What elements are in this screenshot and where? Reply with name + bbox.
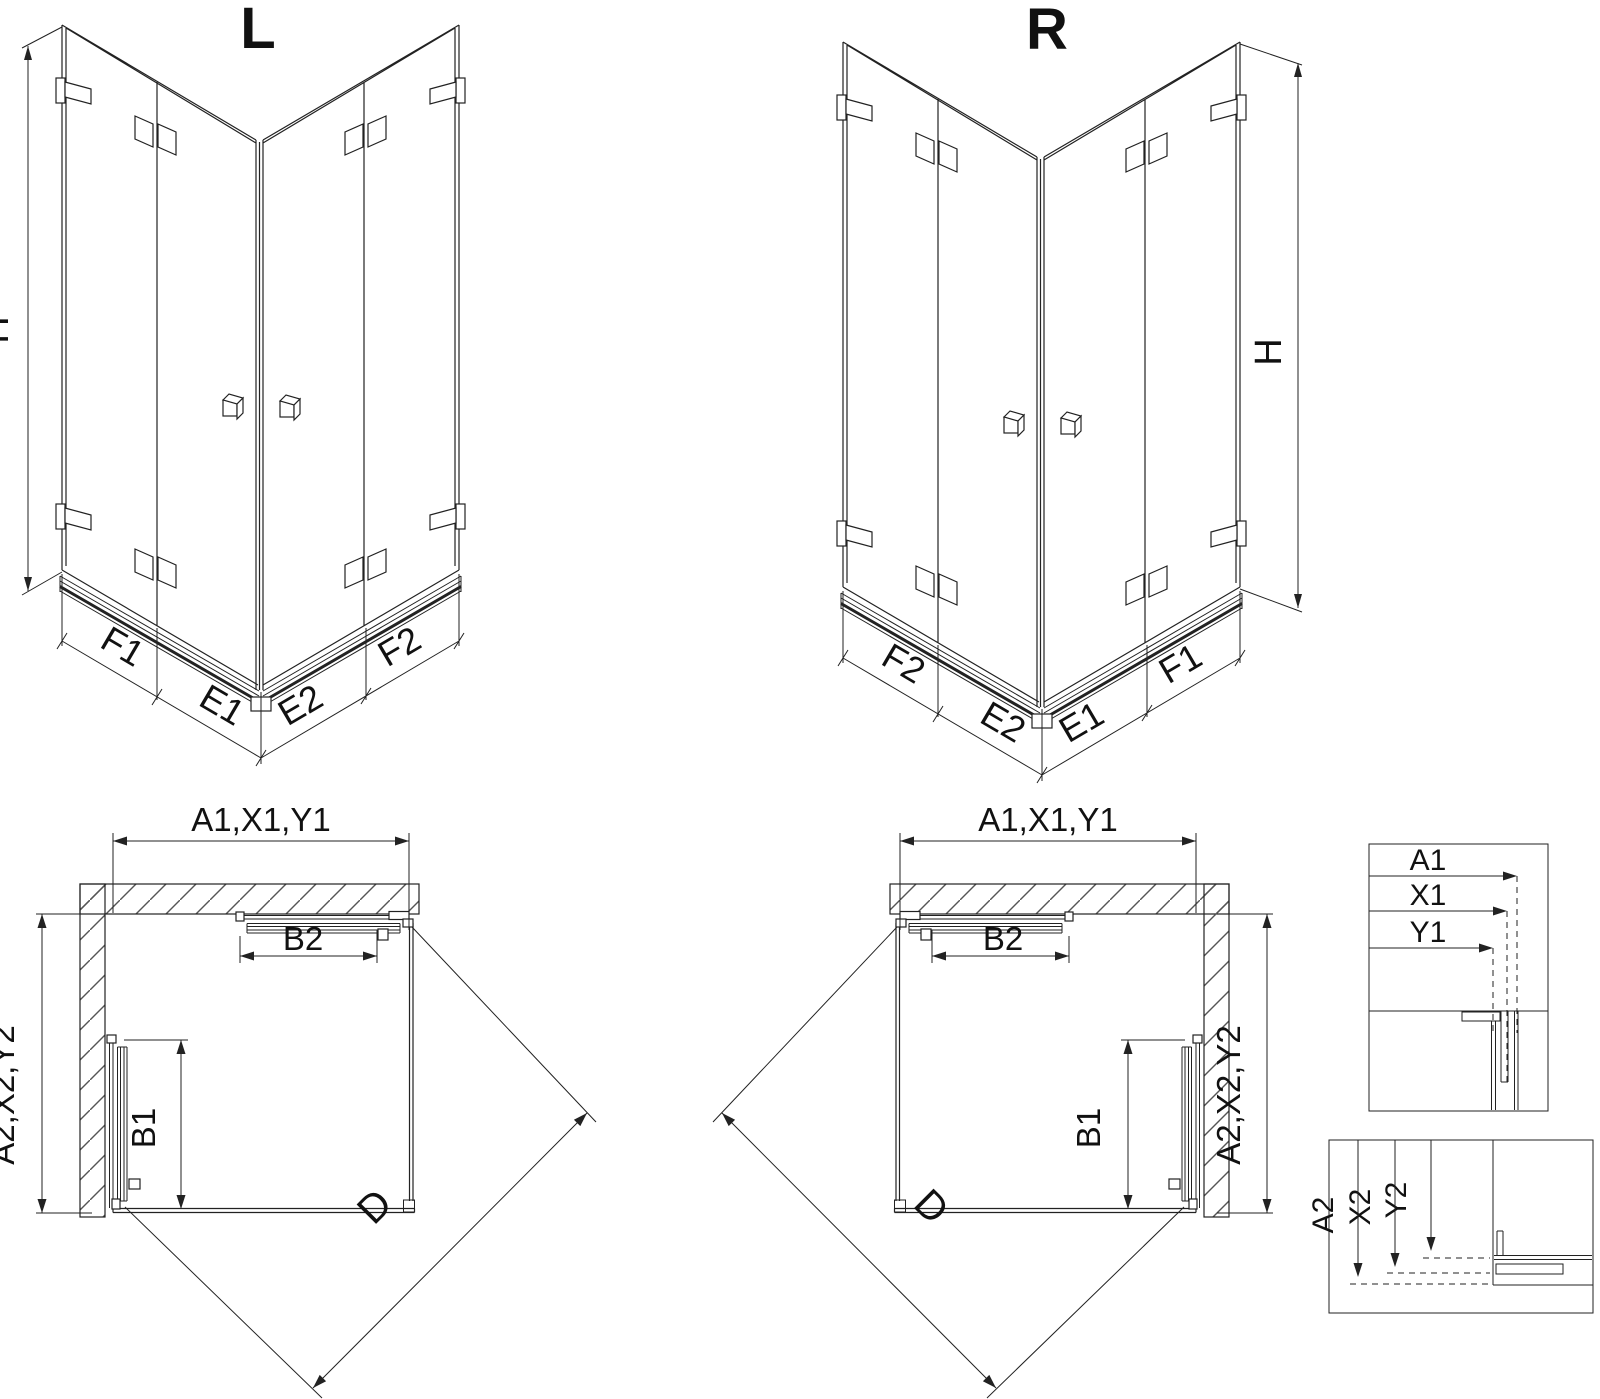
iso-left-seg-e1: E1 <box>193 676 252 734</box>
iso-view-left: L H F1 E1 E2 F2 <box>0 0 465 766</box>
iso-right-dim-height <box>1240 44 1302 612</box>
iso-right-seg-e2: E2 <box>974 693 1033 751</box>
plan-view-right: A1,X1,Y1 A2,X2,Y2 B2 B1 D <box>713 801 1273 1398</box>
plan-right-width-label: A1,X1,Y1 <box>978 801 1117 838</box>
iso-left-seg-f1: F1 <box>94 618 151 675</box>
plan-left-wall-side <box>80 884 105 1217</box>
plan-left-b1-label: B1 <box>125 1108 162 1148</box>
plan-right-b1-label: B1 <box>1070 1108 1107 1148</box>
plan-right-depth-label: A2,X2,Y2 <box>1210 1025 1247 1164</box>
plan-right-b2-label: B2 <box>983 920 1023 957</box>
shower-enclosure-technical-drawing: L H F1 E1 E2 F2 R H F2 E2 E1 F1 A1,X1,Y1… <box>0 0 1600 1399</box>
plan-right-d-label: D <box>905 1181 957 1233</box>
iso-left-title: L <box>240 0 275 61</box>
iso-right-h-label: H <box>1248 338 1290 365</box>
iso-left-seg-e2: E2 <box>271 676 330 734</box>
detail-depth-x2: X2 <box>1344 1189 1377 1226</box>
plan-left-b2-label: B2 <box>283 920 323 957</box>
detail-width-y1: Y1 <box>1410 916 1447 949</box>
plan-left-depth-label: A2,X2,Y2 <box>0 1025 21 1164</box>
detail-width-a1: A1 <box>1410 844 1447 877</box>
plan-left-wall-top <box>80 884 419 914</box>
detail-box-depth: A2 X2 Y2 <box>1307 1140 1593 1313</box>
iso-right-title: R <box>1026 0 1068 62</box>
detail-width-x1: X1 <box>1410 879 1447 912</box>
detail-box-width: A1 X1 Y1 <box>1369 844 1548 1111</box>
iso-right-seg-f2: F2 <box>875 635 932 692</box>
iso-left-h-label: H <box>0 316 17 343</box>
plan-left-width-label: A1,X1,Y1 <box>191 801 330 838</box>
plan-right-wall-top <box>890 884 1229 914</box>
detail-depth-profile <box>1494 1231 1592 1274</box>
plan-left-d-label: D <box>349 1181 401 1233</box>
detail-depth-a2: A2 <box>1307 1197 1340 1234</box>
iso-right-seg-e1: E1 <box>1052 693 1111 751</box>
detail-width-profile <box>1462 1011 1518 1110</box>
iso-view-right: R H F2 E2 E1 F1 <box>837 0 1302 783</box>
drawing-canvas: L H F1 E1 E2 F2 R H F2 E2 E1 F1 A1,X1,Y1… <box>0 0 1600 1399</box>
plan-view-left: A1,X1,Y1 A2,X2,Y2 B2 B1 D <box>0 801 596 1398</box>
detail-depth-y2: Y2 <box>1380 1182 1413 1219</box>
iso-left-seg-f2: F2 <box>371 618 428 675</box>
iso-right-seg-f1: F1 <box>1152 635 1209 692</box>
